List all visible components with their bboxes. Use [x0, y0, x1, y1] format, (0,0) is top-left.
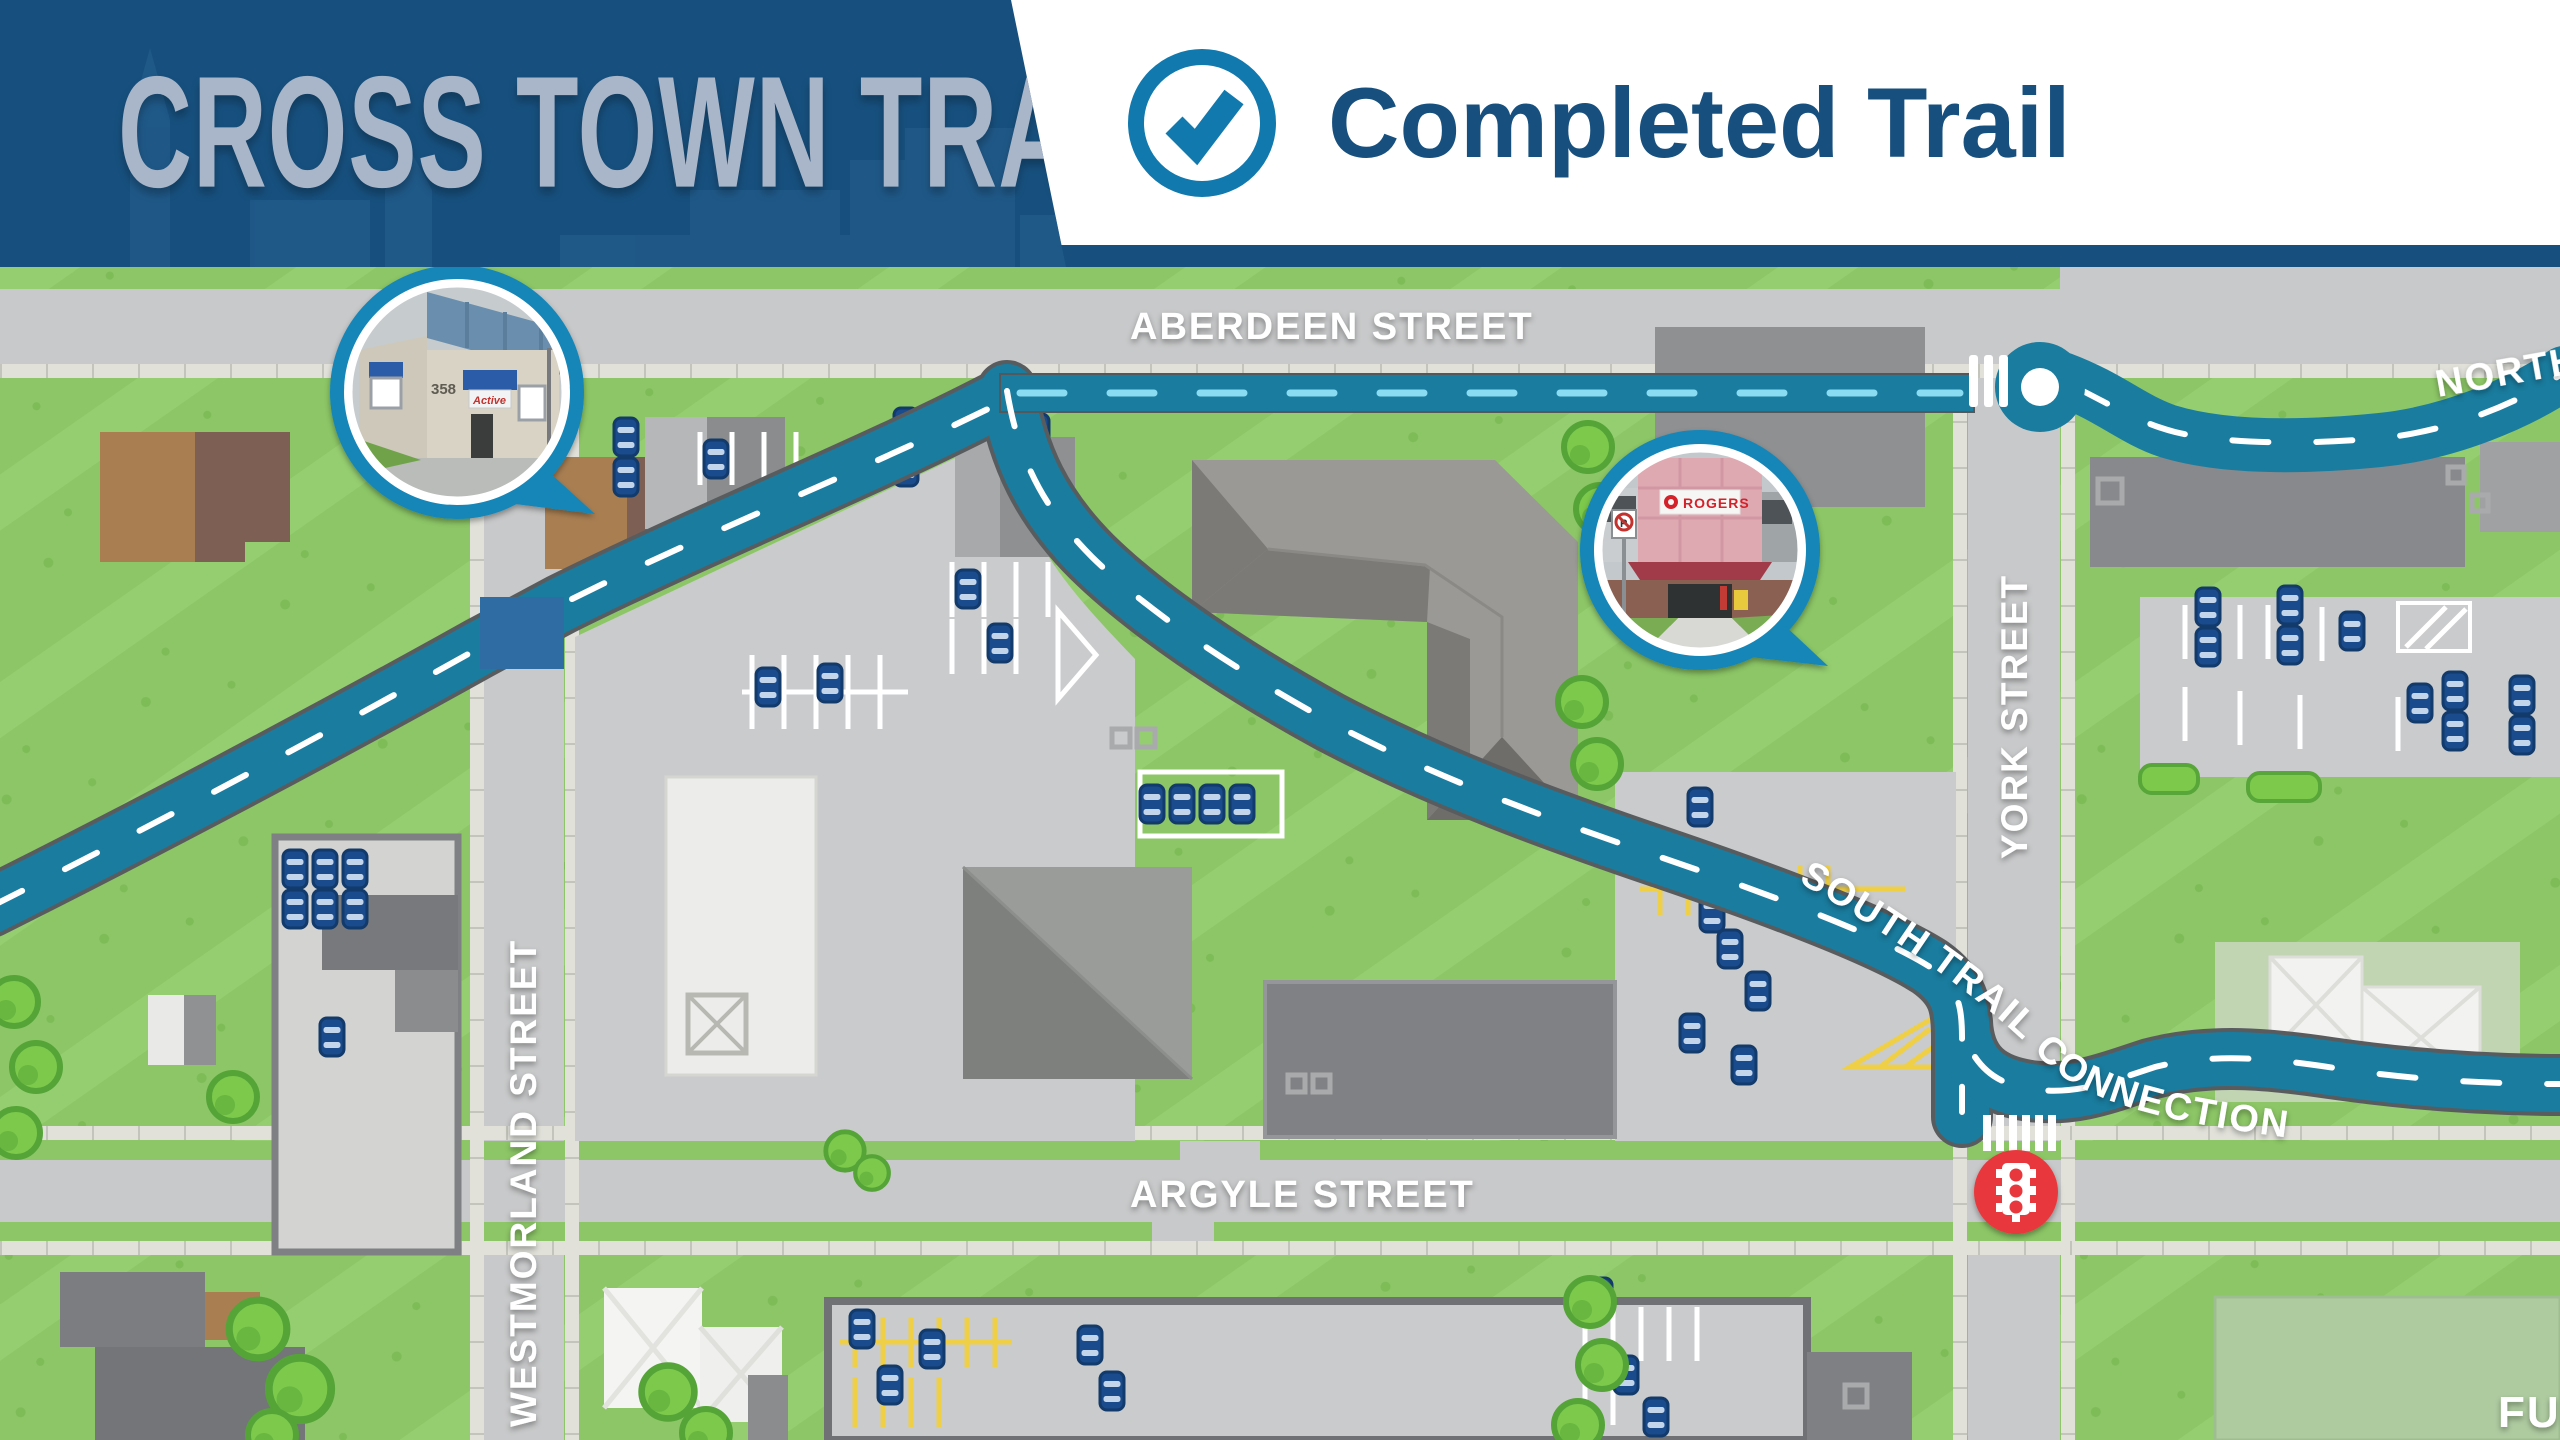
street-number-text: 358: [431, 381, 456, 398]
map-canvas: ABERDEEN STREET ARGYLE STREET WESTMORLAN…: [0, 267, 2560, 1440]
trail-map-poster: CROSS TOWN TRAIL Completed Trail: [0, 0, 2560, 1440]
legend: Completed Trail: [1128, 0, 2071, 245]
label-york-street: YORK STREET: [1994, 574, 2035, 859]
york-road: [1968, 289, 2060, 1440]
traffic-light-icon: [1974, 1150, 2058, 1234]
rogers-sign-text: ROGERS: [1683, 495, 1750, 511]
check-circle-icon: [1128, 49, 1276, 197]
road-crossing-marker: [480, 597, 564, 669]
label-aberdeen-street: ABERDEEN STREET: [1130, 306, 1534, 348]
inset-photo-rogers: ROGERS P: [1602, 452, 1798, 648]
crosswalk-aberdeen-york: [1969, 355, 2008, 407]
label-argyle-street: ARGYLE STREET: [1130, 1174, 1475, 1216]
title-banner: CROSS TOWN TRAIL: [0, 0, 1100, 267]
label-westmorland-street: WESTMORLAND STREET: [503, 939, 544, 1427]
south-dark-building: [1807, 1352, 1912, 1440]
gabled-building: [963, 867, 1192, 1079]
trail-roundabout-marker: [1995, 342, 2085, 432]
white-building: [666, 777, 816, 1075]
legend-label: Completed Trail: [1328, 66, 2071, 180]
dark-flat-building: [1265, 982, 1615, 1137]
small-white-house-left: [148, 995, 216, 1065]
awning-sign-text: Active: [472, 395, 506, 407]
label-future-trail-partial: FU: [2498, 1388, 2560, 1437]
poster-title: CROSS TOWN TRAIL: [118, 41, 1166, 223]
